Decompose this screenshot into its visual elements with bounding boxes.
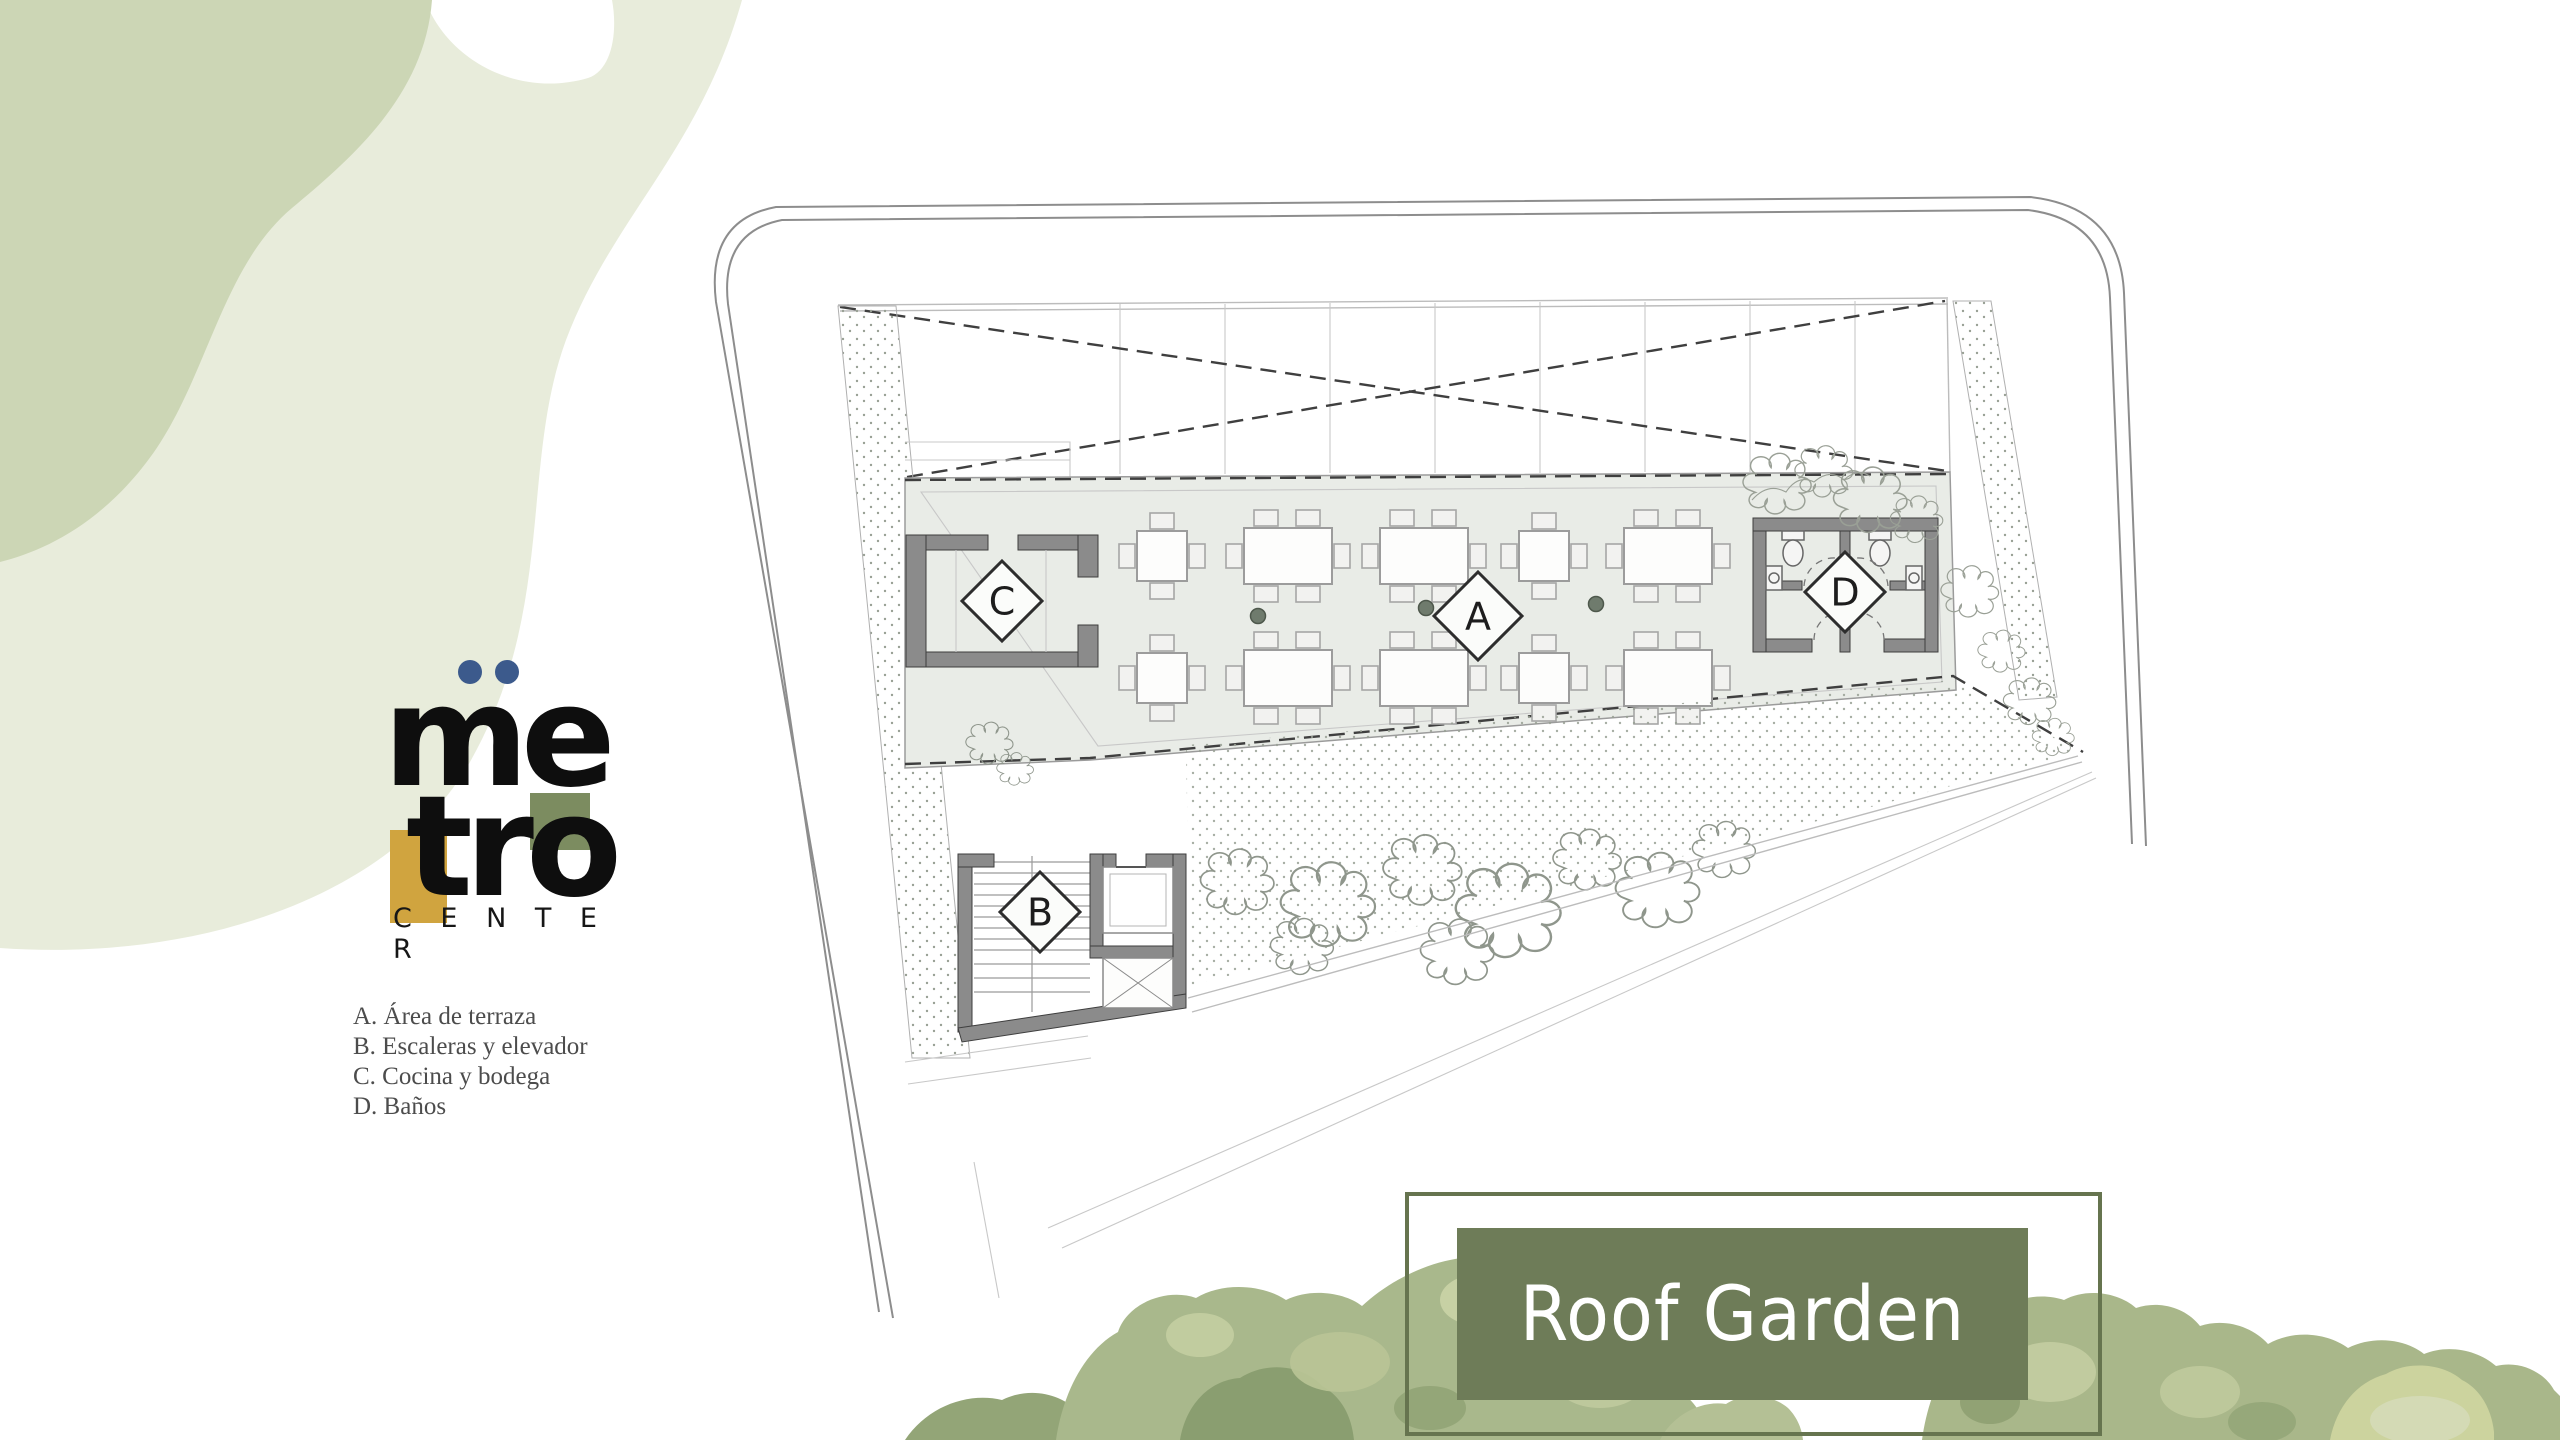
planter-dot [1419, 601, 1434, 616]
background-blobs [0, 0, 742, 950]
shaft-x [1103, 958, 1173, 1008]
logo-dot-icon [495, 660, 519, 684]
slide: A B C D [0, 0, 2560, 1440]
title-box-inner: Roof Garden [1457, 1228, 2028, 1400]
page-title: Roof Garden [1520, 1270, 1966, 1359]
legend-item-b: B. Escaleras y elevador [353, 1032, 588, 1062]
legend-item-d: D. Baños [353, 1092, 588, 1122]
elevator-icon [1103, 867, 1173, 933]
planter-dot [1251, 609, 1266, 624]
logo-dot-icon [458, 660, 482, 684]
room-label-c: C [989, 580, 1016, 624]
legend-item-c: C. Cocina y bodega [353, 1062, 588, 1092]
legend: A. Área de terraza B. Escaleras y elevad… [353, 1002, 588, 1122]
logo-line2: tro [406, 799, 614, 897]
room-label-a: A [1465, 595, 1491, 639]
legend-item-a: A. Área de terraza [353, 1002, 588, 1032]
stairs-elevator-block [958, 854, 1186, 1042]
logo-subtitle: C E N T E R [393, 903, 623, 965]
dashed-void-area [838, 298, 1950, 477]
metro-center-logo: me tro C E N T E R [383, 650, 623, 940]
planter-dot [1589, 597, 1604, 612]
room-label-d: D [1830, 571, 1859, 615]
title-box: Roof Garden [1405, 1192, 2102, 1436]
room-label-b: B [1027, 891, 1053, 935]
